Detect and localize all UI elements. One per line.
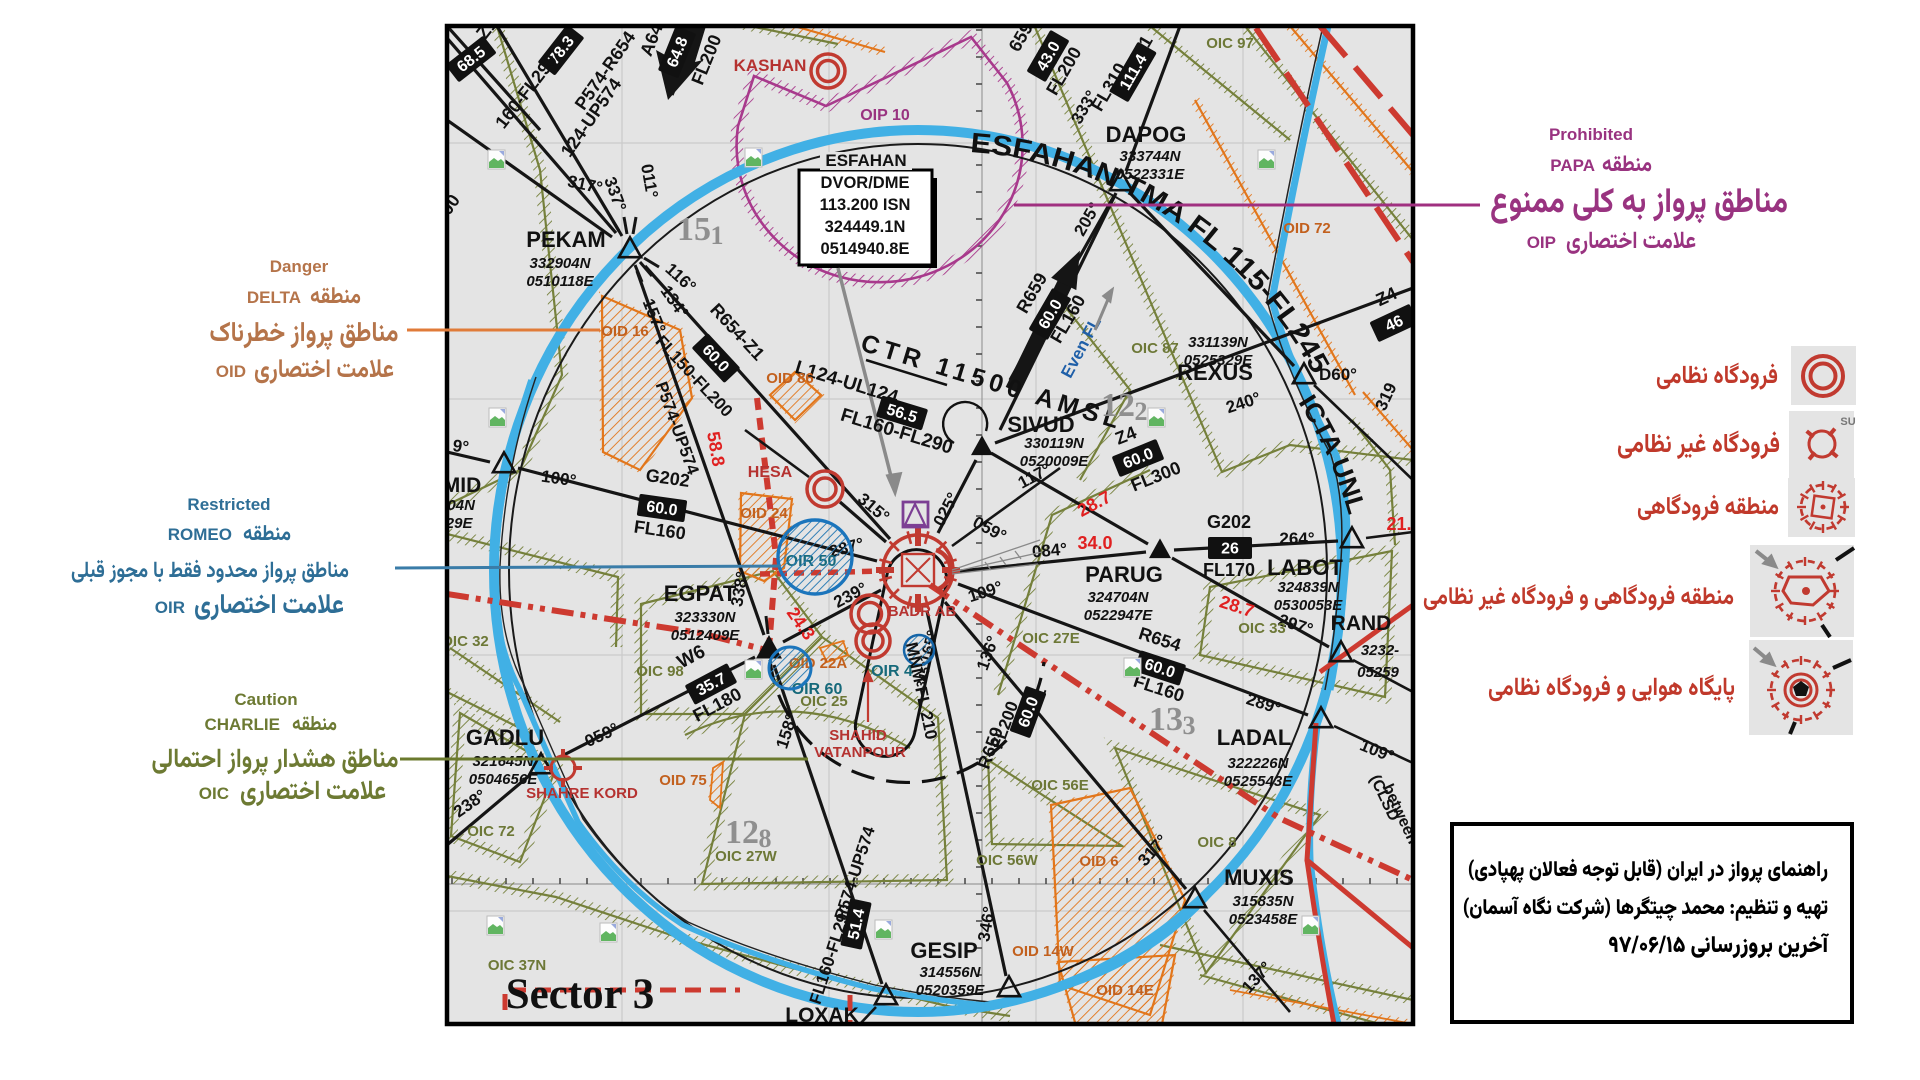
svg-text:331139N: 331139N (1188, 334, 1249, 351)
svg-text:PAPA: PAPA (1550, 156, 1595, 175)
svg-text:OID 14E: OID 14E (1096, 982, 1154, 999)
svg-text:OIC 56W: OIC 56W (976, 852, 1039, 869)
svg-text:05259: 05259 (1357, 664, 1399, 681)
svg-text:084°: 084° (1031, 540, 1068, 562)
svg-text:OIC 72: OIC 72 (467, 823, 515, 840)
svg-text:12: 12 (1101, 387, 1135, 424)
svg-text:OID: OID (216, 362, 246, 381)
svg-text:0523458E: 0523458E (1229, 911, 1298, 928)
svg-text:VATANPOUR: VATANPOUR (814, 744, 906, 761)
svg-text:324704N: 324704N (1088, 589, 1150, 606)
svg-text:OID 75: OID 75 (659, 772, 707, 789)
svg-text:3: 3 (1183, 711, 1196, 740)
svg-text:OID 16: OID 16 (601, 323, 649, 340)
svg-text:DAPOG: DAPOG (1106, 122, 1187, 147)
svg-text:RAND: RAND (1331, 612, 1392, 635)
svg-text:OID 86: OID 86 (766, 370, 814, 387)
svg-text:CHARLIE: CHARLIE (204, 715, 280, 734)
svg-text:PARUG: PARUG (1085, 562, 1163, 587)
svg-text:0520359E: 0520359E (916, 982, 985, 999)
svg-text:OIC 56E: OIC 56E (1031, 777, 1089, 794)
svg-text:EGPAT: EGPAT (664, 581, 737, 606)
svg-text:DELTA: DELTA (247, 288, 301, 307)
svg-text:FL170: FL170 (1203, 560, 1255, 580)
svg-text:SHAHID: SHAHID (829, 727, 887, 744)
svg-text:324449.1N: 324449.1N (825, 218, 906, 236)
svg-text:1: 1 (711, 221, 724, 250)
svg-text:OID 24: OID 24 (740, 505, 788, 522)
svg-text:OIC 98: OIC 98 (636, 663, 684, 680)
svg-text:315835N: 315835N (1233, 893, 1295, 910)
svg-text:SHAHRE KORD: SHAHRE KORD (526, 785, 638, 802)
svg-text:2: 2 (1135, 397, 1148, 426)
svg-text:GESIP: GESIP (910, 938, 977, 963)
svg-text:34.0: 34.0 (1077, 533, 1112, 553)
svg-text:26: 26 (1221, 541, 1239, 558)
svg-text:MUXIS: MUXIS (1224, 865, 1294, 890)
svg-text:G202: G202 (1207, 512, 1251, 532)
svg-text:OID 14W: OID 14W (1012, 943, 1075, 960)
svg-text:0520009E: 0520009E (1020, 453, 1089, 470)
svg-text:OIP: OIP (1527, 233, 1556, 252)
svg-text:0512409E: 0512409E (671, 627, 740, 644)
svg-text:8: 8 (759, 824, 772, 853)
svg-text:029E: 029E (437, 515, 473, 532)
svg-text:SIVUD: SIVUD (1007, 412, 1074, 437)
svg-text:GADLU: GADLU (466, 725, 544, 750)
svg-text:OIC 33: OIC 33 (1238, 620, 1286, 637)
svg-text:OIC: OIC (199, 784, 229, 803)
svg-text:ROMEO: ROMEO (168, 525, 232, 544)
svg-text:321645N: 321645N (473, 753, 535, 770)
svg-text:21.: 21. (1386, 514, 1411, 534)
svg-text:Prohibited: Prohibited (1549, 125, 1633, 144)
svg-text:333744N: 333744N (1120, 148, 1182, 165)
svg-text:Sector 3: Sector 3 (506, 971, 654, 1018)
svg-text:KASHAN: KASHAN (734, 56, 807, 75)
svg-text:332904N: 332904N (530, 255, 592, 272)
svg-text:OID 6: OID 6 (1079, 853, 1118, 870)
svg-text:OIP 10: OIP 10 (860, 107, 910, 124)
svg-text:0525329E: 0525329E (1184, 352, 1253, 369)
svg-text:13: 13 (1149, 701, 1183, 738)
svg-text:12: 12 (725, 814, 759, 851)
svg-text:904N: 904N (439, 497, 476, 514)
svg-text:OIR: OIR (155, 598, 185, 617)
svg-text:PEKAM: PEKAM (526, 227, 605, 252)
svg-text:314556N: 314556N (920, 964, 982, 981)
svg-text:Restricted: Restricted (187, 495, 270, 514)
svg-text:OIC 27E: OIC 27E (1022, 630, 1080, 647)
svg-text:15: 15 (677, 211, 711, 248)
svg-text:OID 72: OID 72 (1283, 220, 1331, 237)
svg-text:322226N: 322226N (1228, 755, 1290, 772)
svg-text:0522331E: 0522331E (1116, 166, 1185, 183)
svg-text:OIC 87: OIC 87 (1131, 340, 1179, 357)
svg-text:Danger: Danger (270, 257, 329, 276)
svg-text:ESFAHAN: ESFAHAN (825, 151, 906, 170)
svg-text:323330N: 323330N (675, 609, 737, 626)
svg-text:Caution: Caution (234, 690, 297, 709)
svg-text:9°: 9° (451, 436, 470, 457)
svg-text:SU: SU (1840, 416, 1855, 428)
svg-text:264°: 264° (1279, 529, 1314, 548)
svg-text:0525543E: 0525543E (1224, 773, 1293, 790)
svg-text:LADAL: LADAL (1217, 725, 1292, 750)
svg-text:LABOT: LABOT (1267, 555, 1343, 580)
svg-text:0522947E: 0522947E (1084, 607, 1153, 624)
svg-text:OIC 8: OIC 8 (1197, 834, 1236, 851)
svg-text:0510118E: 0510118E (526, 273, 594, 290)
svg-text:330119N: 330119N (1024, 435, 1085, 452)
svg-text:324839N: 324839N (1278, 579, 1340, 596)
svg-text:DVOR/DME: DVOR/DME (821, 174, 910, 192)
svg-text:HESA: HESA (748, 464, 793, 481)
svg-text:113.200 ISN: 113.200 ISN (820, 196, 911, 214)
svg-text:0514940.8E: 0514940.8E (820, 240, 909, 258)
svg-text:OIC 97: OIC 97 (1206, 35, 1254, 52)
svg-text:3232-: 3232- (1361, 642, 1399, 659)
